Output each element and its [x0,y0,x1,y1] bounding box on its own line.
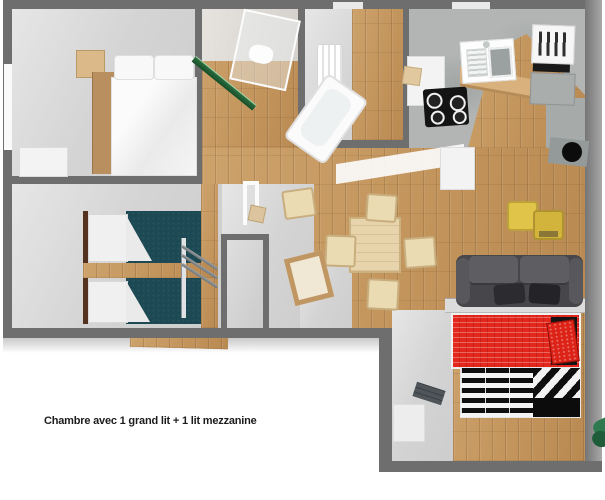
green-leaf-logo [590,419,605,449]
window-top-bathroom [333,2,363,9]
sink-basin [488,46,513,78]
dining-chair [403,236,437,269]
window-top-kitchen [452,2,490,9]
mezzanine-post [201,184,218,328]
oven-strip [533,63,570,72]
cooktop [423,87,470,128]
sofa-pillow [493,283,526,306]
sofa-back-cushion [520,256,569,285]
stool [248,205,267,224]
shower-tray [247,43,274,66]
burner [430,110,445,125]
floorplan-render: Chambre avec 1 grand lit + 1 lit mezzani… [0,0,605,500]
caption: Chambre avec 1 grand lit + 1 lit mezzani… [44,415,257,427]
wall-top [3,0,602,9]
wall-bottom-left [3,328,392,338]
double-bed-pillow-left [114,55,154,80]
single-bed-red [451,313,581,369]
sofa-armrest-left [456,258,470,304]
dining-chair [324,234,356,267]
dining-table [349,217,401,273]
striped-duvet-diagonal [533,368,580,398]
sofa [456,255,583,307]
sink-unit [460,38,517,84]
microwave [531,24,575,64]
twin-bed-1-pillow [88,214,128,262]
dining-chair [281,187,317,220]
appliance-cabinet [530,72,576,106]
appliance-column [530,24,577,103]
wall-left [3,0,12,337]
dresser [19,147,68,177]
sink-drainboard [466,48,488,77]
mezzanine-bed-striped [460,367,581,418]
leaf-icon [590,428,605,449]
window-bedroom [4,64,12,150]
wall-bottom-right [379,461,602,472]
red-bed-pillow [546,319,580,364]
bathroom-floor-wood [352,9,403,140]
double-bed-duvet [111,77,197,176]
pellet-stove [562,142,582,162]
kitchen-cart-board [402,66,422,86]
microwave-vents [538,31,567,56]
cushion-label [539,231,558,237]
door-frame-left [243,181,247,225]
sofa-back-cushion [469,256,518,285]
door-frame-header [243,181,259,185]
dining-chair [366,278,400,311]
dining-chair [365,193,398,223]
twin-bed-2-pillow [88,281,128,323]
closet-wc [221,234,269,328]
sofa-armrest-right [569,258,583,304]
burner [426,92,443,109]
striped-bed-black-corner [533,398,580,417]
wall-bedroom-bottom [3,176,202,184]
double-bed-pillow-right [154,55,194,80]
wall-mezzroom-left [379,328,392,461]
wall-right [585,0,602,470]
burner [452,110,467,125]
living-cabinet [440,147,475,190]
mezzanine-room-rug [393,404,425,442]
sofa-pillow [528,283,560,305]
striped-duvet [461,368,533,417]
